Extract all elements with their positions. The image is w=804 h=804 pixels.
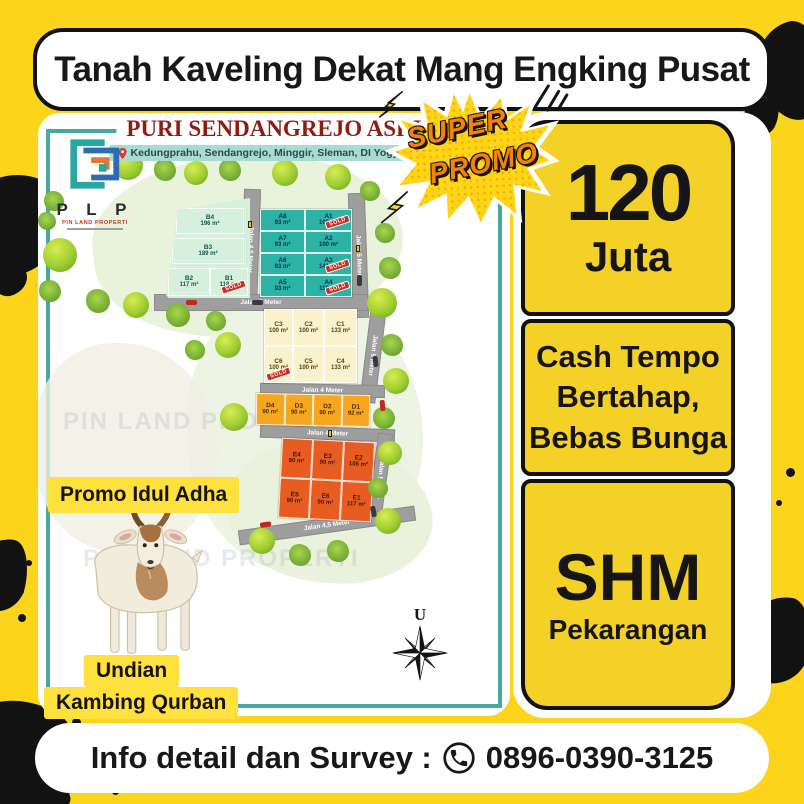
headline-title: Tanah Kaveling Dekat Mang Engking Pusat bbox=[54, 50, 750, 90]
plot-d1: D192 m² bbox=[341, 394, 370, 426]
plot-c3: C3100 m² bbox=[264, 309, 293, 346]
plp-logo: P L P PIN LAND PROPERTI bbox=[52, 135, 138, 230]
plot-c5: C5100 m² bbox=[293, 346, 324, 383]
plot-c2: C2100 m² bbox=[293, 309, 324, 346]
compass-rose: U bbox=[390, 605, 450, 686]
plot-e3: E390 m² bbox=[311, 439, 344, 481]
road-sign bbox=[356, 245, 360, 252]
plp-logo-icon bbox=[66, 135, 124, 193]
tree-icon bbox=[123, 292, 149, 318]
certificate-title: SHM bbox=[555, 544, 702, 610]
section-c: C3100 m² C2100 m² C1133 m² C6100 m²SOLD … bbox=[264, 309, 357, 383]
car-icon bbox=[252, 300, 263, 305]
plot-d2: D290 m² bbox=[313, 394, 342, 426]
tree-icon bbox=[325, 164, 351, 190]
section-a: A893 m² A793 m² A693 m² A593 m² A1100 m²… bbox=[260, 209, 352, 297]
bush-icon bbox=[166, 303, 190, 327]
speed-lines-icon bbox=[528, 75, 570, 113]
undian-label-line1: Undian bbox=[84, 655, 179, 687]
siteplan-address-text: Kedungprahu, Sendangrejo, Minggir, Slema… bbox=[131, 147, 430, 159]
goat-illustration bbox=[56, 503, 224, 661]
plot-a3: A3141 m²SOLD bbox=[305, 253, 352, 275]
bush-icon bbox=[327, 540, 349, 562]
tree-icon bbox=[220, 403, 248, 431]
section-e: E490 m² E390 m² E2106 m² E590 m² E690 m²… bbox=[278, 438, 375, 523]
phone-icon bbox=[442, 741, 476, 775]
plot-d4: D490 m² bbox=[256, 393, 285, 425]
bush-icon bbox=[289, 544, 311, 566]
plot-c1: C1133 m² bbox=[324, 309, 357, 346]
bush-icon bbox=[206, 311, 226, 331]
section-b: B4196 m² B3189 m² B2117 m² B1118 m²SOLD bbox=[166, 198, 250, 298]
terms-line-2: Bertahap, bbox=[557, 377, 700, 417]
car-icon bbox=[380, 400, 386, 411]
price-unit: Juta bbox=[585, 233, 671, 281]
super-promo-burst: SUPER PROMO bbox=[389, 86, 558, 230]
undian-label-line2: Kambing Qurban bbox=[44, 687, 238, 719]
plot-c4: C4133 m² bbox=[324, 346, 357, 383]
terms-line-3: Bebas Bunga bbox=[529, 418, 727, 458]
plot-a1: A1100 m²SOLD bbox=[305, 209, 352, 231]
plot-b2: B2117 m² bbox=[168, 268, 210, 296]
bush-icon bbox=[375, 223, 395, 243]
bush-icon bbox=[379, 257, 401, 279]
sparkle-icon bbox=[378, 189, 414, 225]
road-sign bbox=[328, 430, 332, 437]
plot-e4: E490 m² bbox=[280, 438, 313, 480]
bush-icon bbox=[185, 340, 205, 360]
terms-line-1: Cash Tempo bbox=[536, 337, 720, 377]
plp-logo-tagline-bar bbox=[67, 228, 123, 230]
tree-icon bbox=[215, 332, 241, 358]
contact-bar: Info detail dan Survey : 0896-0390-3125 bbox=[35, 723, 769, 793]
plot-a7: A793 m² bbox=[260, 231, 305, 253]
plot-b3: B3189 m² bbox=[172, 238, 244, 264]
bush-icon bbox=[368, 478, 388, 498]
car-icon bbox=[357, 275, 362, 286]
certificate-subtitle: Pekarangan bbox=[549, 614, 708, 646]
plot-c6: C6100 m²SOLD bbox=[264, 346, 293, 383]
road-label: Jalan 5 Meter bbox=[354, 235, 362, 276]
compass-north-label: U bbox=[390, 605, 450, 625]
flyer-canvas: Tanah Kaveling Dekat Mang Engking Pusat … bbox=[0, 0, 804, 804]
plot-a2: A2100 m² bbox=[305, 231, 352, 253]
sparkle-icon bbox=[374, 90, 406, 122]
plot-e5: E590 m² bbox=[278, 478, 311, 520]
plot-a4: A4118 m²SOLD bbox=[305, 275, 352, 297]
contact-phone-number: 0896-0390-3125 bbox=[486, 740, 714, 776]
plot-d3: D390 m² bbox=[284, 394, 313, 426]
tree-icon bbox=[43, 238, 77, 272]
plot-b4: B4196 m² bbox=[176, 208, 244, 234]
plp-logo-letters: P L P bbox=[52, 200, 138, 220]
compass-rose-icon bbox=[392, 625, 448, 681]
bush-icon bbox=[219, 159, 241, 181]
terms-box: Cash Tempo Bertahap, Bebas Bunga bbox=[521, 319, 735, 476]
tree-icon bbox=[383, 368, 409, 394]
bush-icon bbox=[154, 159, 176, 181]
tree-icon bbox=[249, 528, 275, 554]
tree-icon bbox=[367, 288, 397, 318]
contact-label: Info detail dan Survey : bbox=[91, 740, 432, 776]
plot-e6: E690 m² bbox=[309, 479, 342, 521]
tree-icon bbox=[375, 508, 401, 534]
bush-icon bbox=[86, 289, 110, 313]
certificate-box: SHM Pekarangan bbox=[521, 479, 735, 710]
car-icon bbox=[186, 300, 197, 305]
plot-b1: B1118 m²SOLD bbox=[210, 268, 248, 296]
bush-icon bbox=[381, 334, 403, 356]
tree-icon bbox=[378, 441, 402, 465]
tree-icon bbox=[184, 161, 208, 185]
plot-e2: E2106 m² bbox=[342, 441, 375, 483]
plot-a8: A893 m² bbox=[260, 209, 305, 231]
road-sign bbox=[248, 221, 252, 228]
plot-a5: A593 m² bbox=[260, 275, 305, 297]
section-d: D490 m² D390 m² D290 m² D192 m² bbox=[256, 393, 371, 427]
bush-icon bbox=[39, 280, 61, 302]
plp-logo-name: PIN LAND PROPERTI bbox=[52, 220, 138, 226]
price-amount: 120 bbox=[566, 155, 690, 231]
promo-idul-adha-label: Promo Idul Adha bbox=[48, 477, 239, 513]
tree-icon bbox=[272, 160, 298, 186]
plot-a6: A693 m² bbox=[260, 253, 305, 275]
